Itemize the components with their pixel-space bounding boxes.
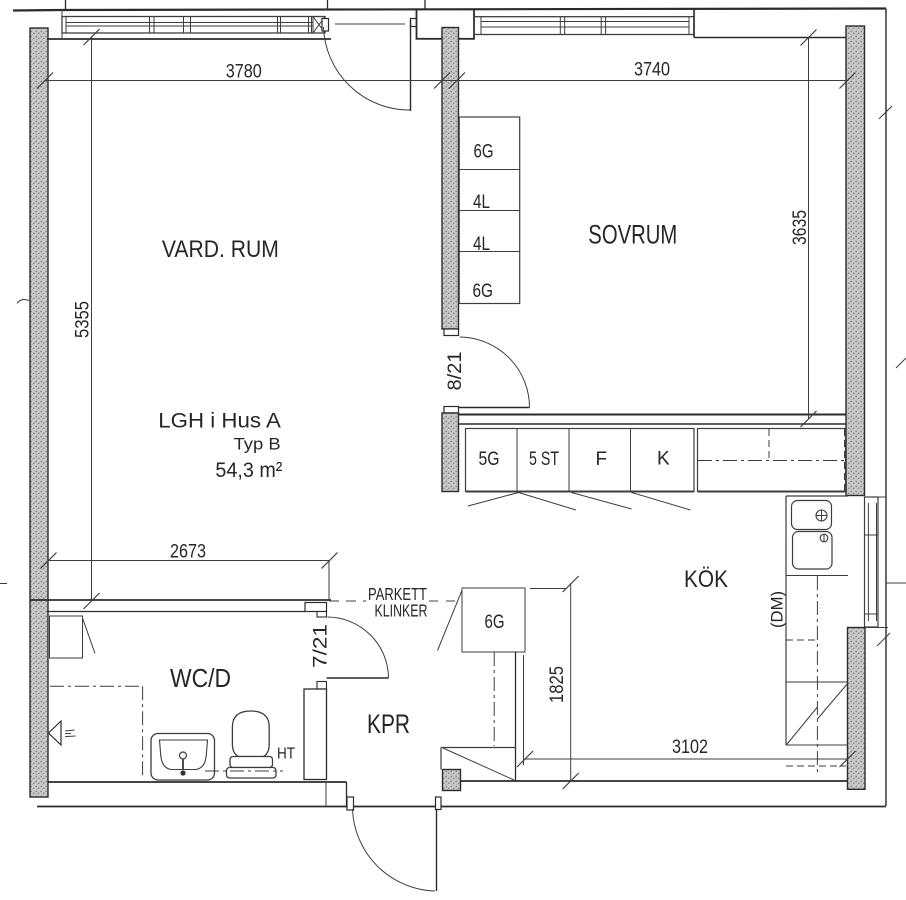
svg-text:8/21: 8/21 [445, 352, 466, 391]
svg-text:WC/D: WC/D [170, 663, 231, 693]
svg-text:VARD. RUM: VARD. RUM [162, 236, 279, 263]
svg-text:KLINKER: KLINKER [375, 601, 428, 621]
svg-text:SOVRUM: SOVRUM [588, 220, 677, 250]
svg-text:6G: 6G [474, 142, 494, 163]
svg-text:KÖK: KÖK [684, 566, 729, 593]
svg-text:4L: 4L [473, 192, 490, 213]
svg-text:4L: 4L [473, 234, 490, 255]
svg-text:3740: 3740 [634, 60, 670, 81]
svg-text:3635: 3635 [790, 210, 811, 245]
svg-text:HT: HT [277, 746, 295, 763]
svg-text:LGH i Hus A: LGH i Hus A [158, 409, 281, 433]
svg-text:5 ST: 5 ST [529, 449, 559, 470]
svg-text:F: F [596, 449, 608, 470]
svg-text:5G: 5G [479, 449, 500, 470]
svg-text:7/21: 7/21 [311, 624, 332, 668]
svg-text:1825: 1825 [547, 666, 568, 703]
svg-text:3780: 3780 [226, 62, 262, 83]
svg-text:6G: 6G [485, 612, 505, 633]
svg-text:KPR: KPR [367, 709, 410, 739]
svg-text:Typ B: Typ B [234, 436, 281, 454]
svg-text:(DM): (DM) [769, 591, 787, 628]
svg-text:6G: 6G [473, 281, 494, 302]
svg-text:5355: 5355 [73, 301, 94, 338]
svg-text:K: K [657, 449, 670, 470]
svg-text:3102: 3102 [672, 737, 708, 758]
svg-text:54,3 m²: 54,3 m² [215, 458, 282, 482]
svg-text:2673: 2673 [170, 542, 206, 563]
